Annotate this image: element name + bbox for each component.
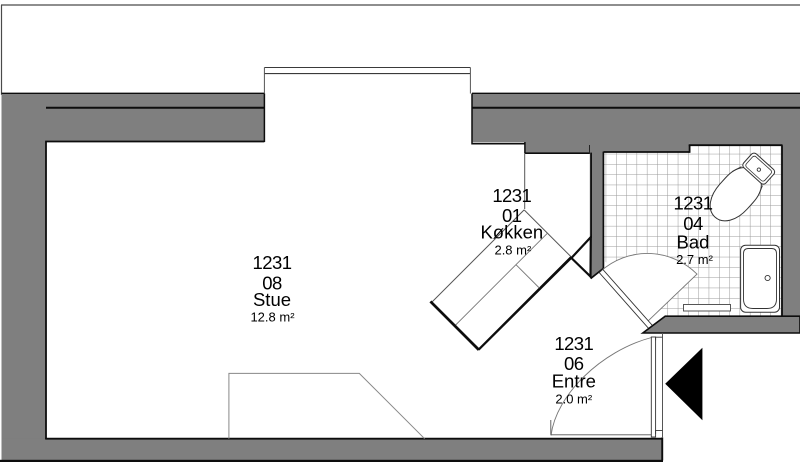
svg-text:12.8 m²: 12.8 m²	[250, 309, 295, 324]
svg-text:1231: 1231	[253, 252, 292, 273]
svg-text:1231: 1231	[492, 185, 531, 206]
svg-text:Køkken: Køkken	[480, 222, 543, 243]
svg-text:1231: 1231	[554, 333, 593, 354]
svg-text:2.0 m²: 2.0 m²	[555, 391, 593, 406]
svg-text:2.8 m²: 2.8 m²	[494, 242, 532, 257]
svg-text:Entre: Entre	[552, 371, 596, 392]
svg-text:Bad: Bad	[677, 231, 710, 252]
svg-text:2.7 m²: 2.7 m²	[676, 252, 714, 267]
svg-text:Stue: Stue	[253, 289, 291, 310]
svg-text:1231: 1231	[674, 193, 713, 214]
